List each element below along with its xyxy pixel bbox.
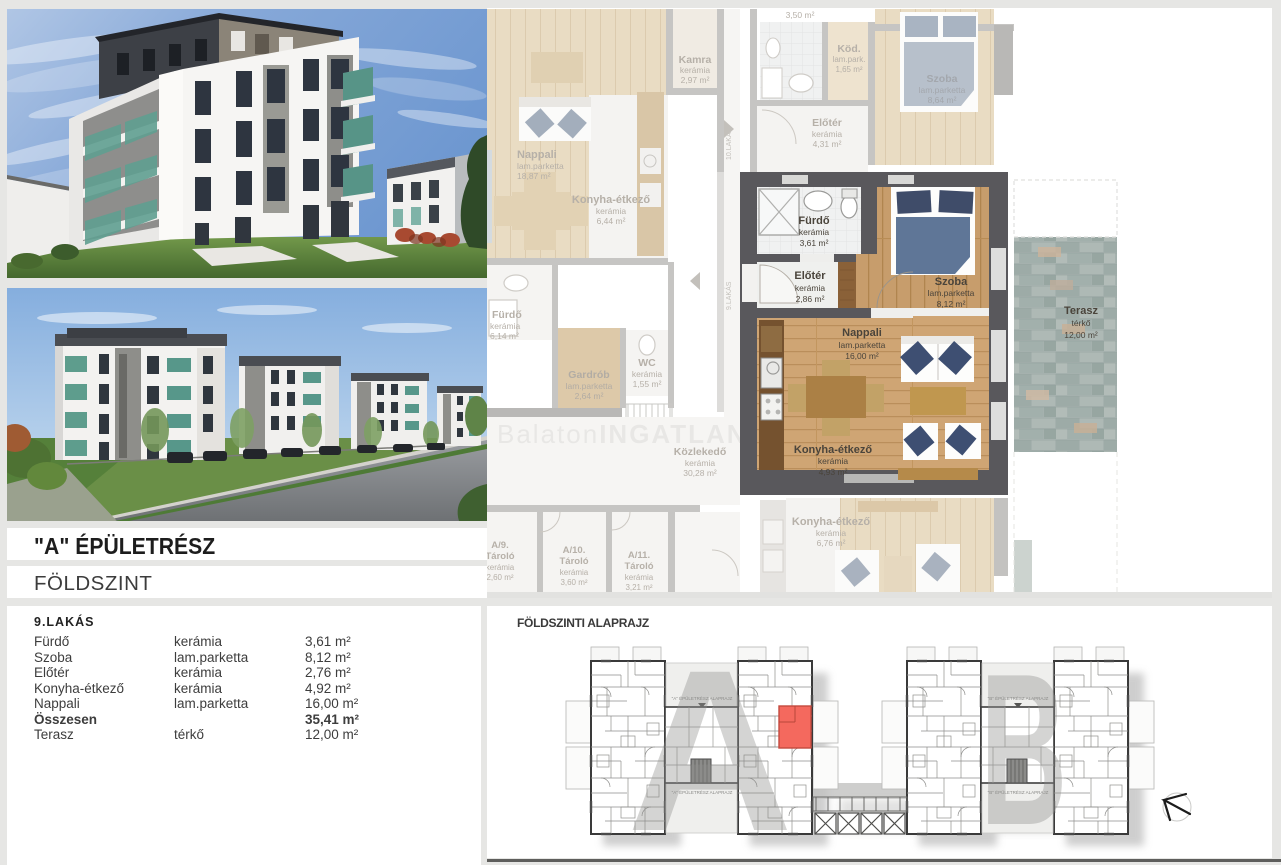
svg-text:2,86 m²: 2,86 m²: [796, 294, 825, 304]
svg-text:kerámia: kerámia: [632, 369, 663, 379]
svg-text:kerámia: kerámia: [560, 568, 589, 577]
svg-text:Terasz: Terasz: [1064, 305, 1099, 317]
svg-text:kerámia: kerámia: [685, 458, 716, 468]
svg-text:8,64 m²: 8,64 m²: [928, 95, 957, 105]
svg-text:12,00 m²: 12,00 m²: [1064, 330, 1098, 340]
svg-text:4,31 m²: 4,31 m²: [813, 139, 842, 149]
svg-text:9.LAKÁS: 9.LAKÁS: [724, 281, 733, 310]
svg-text:A: A: [627, 622, 793, 858]
svg-text:6,14 m²: 6,14 m²: [490, 331, 519, 341]
svg-text:Gardrób: Gardrób: [568, 369, 609, 381]
svg-text:8,12 m²: 8,12 m²: [937, 299, 966, 309]
svg-text:3,21 m²: 3,21 m²: [625, 583, 652, 592]
svg-text:kerámia: kerámia: [680, 65, 711, 75]
svg-text:6,44 m²: 6,44 m²: [597, 216, 626, 226]
svg-text:Tároló: Tároló: [559, 556, 588, 567]
svg-text:kerámia: kerámia: [816, 528, 847, 538]
svg-text:kerámia: kerámia: [818, 456, 849, 466]
svg-text:kerámia: kerámia: [795, 283, 826, 293]
svg-text:Konyha-étkező: Konyha-étkező: [572, 194, 651, 206]
svg-text:4,93 m²: 4,93 m²: [819, 467, 848, 477]
svg-text:Tároló: Tároló: [487, 551, 515, 562]
svg-text:3,61 m²: 3,61 m²: [800, 238, 829, 248]
svg-text:lam.park.: lam.park.: [833, 55, 866, 64]
svg-text:B: B: [980, 630, 1067, 858]
svg-text:lam.parketta: lam.parketta: [928, 288, 975, 298]
svg-text:Konyha-étkező: Konyha-étkező: [794, 444, 873, 456]
svg-text:6,76 m²: 6,76 m²: [817, 538, 846, 548]
svg-text:lam.parketta: lam.parketta: [566, 381, 613, 391]
svg-text:lam.parketta: lam.parketta: [517, 161, 564, 171]
svg-text:WC: WC: [638, 357, 656, 369]
svg-text:Nappali: Nappali: [517, 149, 557, 161]
svg-text:kerámia: kerámia: [625, 573, 654, 582]
svg-text:2,64 m²: 2,64 m²: [575, 391, 604, 401]
svg-text:Köd.: Köd.: [837, 43, 860, 55]
svg-text:A/10.: A/10.: [563, 545, 586, 556]
svg-text:kerámia: kerámia: [812, 129, 843, 139]
svg-text:30,28 m²: 30,28 m²: [683, 468, 717, 478]
svg-text:kerámia: kerámia: [487, 563, 515, 572]
svg-text:kerámia: kerámia: [596, 206, 627, 216]
svg-text:lam.parketta: lam.parketta: [919, 85, 966, 95]
svg-text:Konyha-étkező: Konyha-étkező: [792, 516, 871, 528]
svg-text:Szoba: Szoba: [935, 276, 968, 288]
svg-text:3,60 m²: 3,60 m²: [560, 578, 587, 587]
svg-text:kerámia: kerámia: [490, 321, 521, 331]
svg-text:térkő: térkő: [1072, 318, 1091, 328]
svg-text:Előtér: Előtér: [812, 117, 842, 129]
svg-text:2,97 m²: 2,97 m²: [681, 75, 710, 85]
svg-text:1,65 m²: 1,65 m²: [835, 65, 862, 74]
svg-text:lam.parketta: lam.parketta: [839, 340, 886, 350]
svg-text:18,87 m²: 18,87 m²: [517, 171, 551, 181]
svg-text:3,50 m²: 3,50 m²: [786, 10, 815, 20]
svg-text:Szoba: Szoba: [927, 73, 958, 85]
svg-text:kerámia: kerámia: [799, 227, 830, 237]
svg-text:2,60 m²: 2,60 m²: [487, 573, 514, 582]
svg-text:Tároló: Tároló: [624, 561, 653, 572]
svg-text:16,00 m²: 16,00 m²: [845, 351, 879, 361]
svg-text:Nappali: Nappali: [842, 327, 882, 339]
svg-text:Előtér: Előtér: [794, 270, 826, 282]
svg-text:Fürdő: Fürdő: [492, 309, 522, 321]
svg-text:A/9.: A/9.: [491, 540, 508, 551]
svg-text:1,55 m²: 1,55 m²: [633, 379, 662, 389]
svg-text:Fürdő: Fürdő: [798, 215, 829, 227]
svg-text:A/11.: A/11.: [628, 550, 650, 561]
